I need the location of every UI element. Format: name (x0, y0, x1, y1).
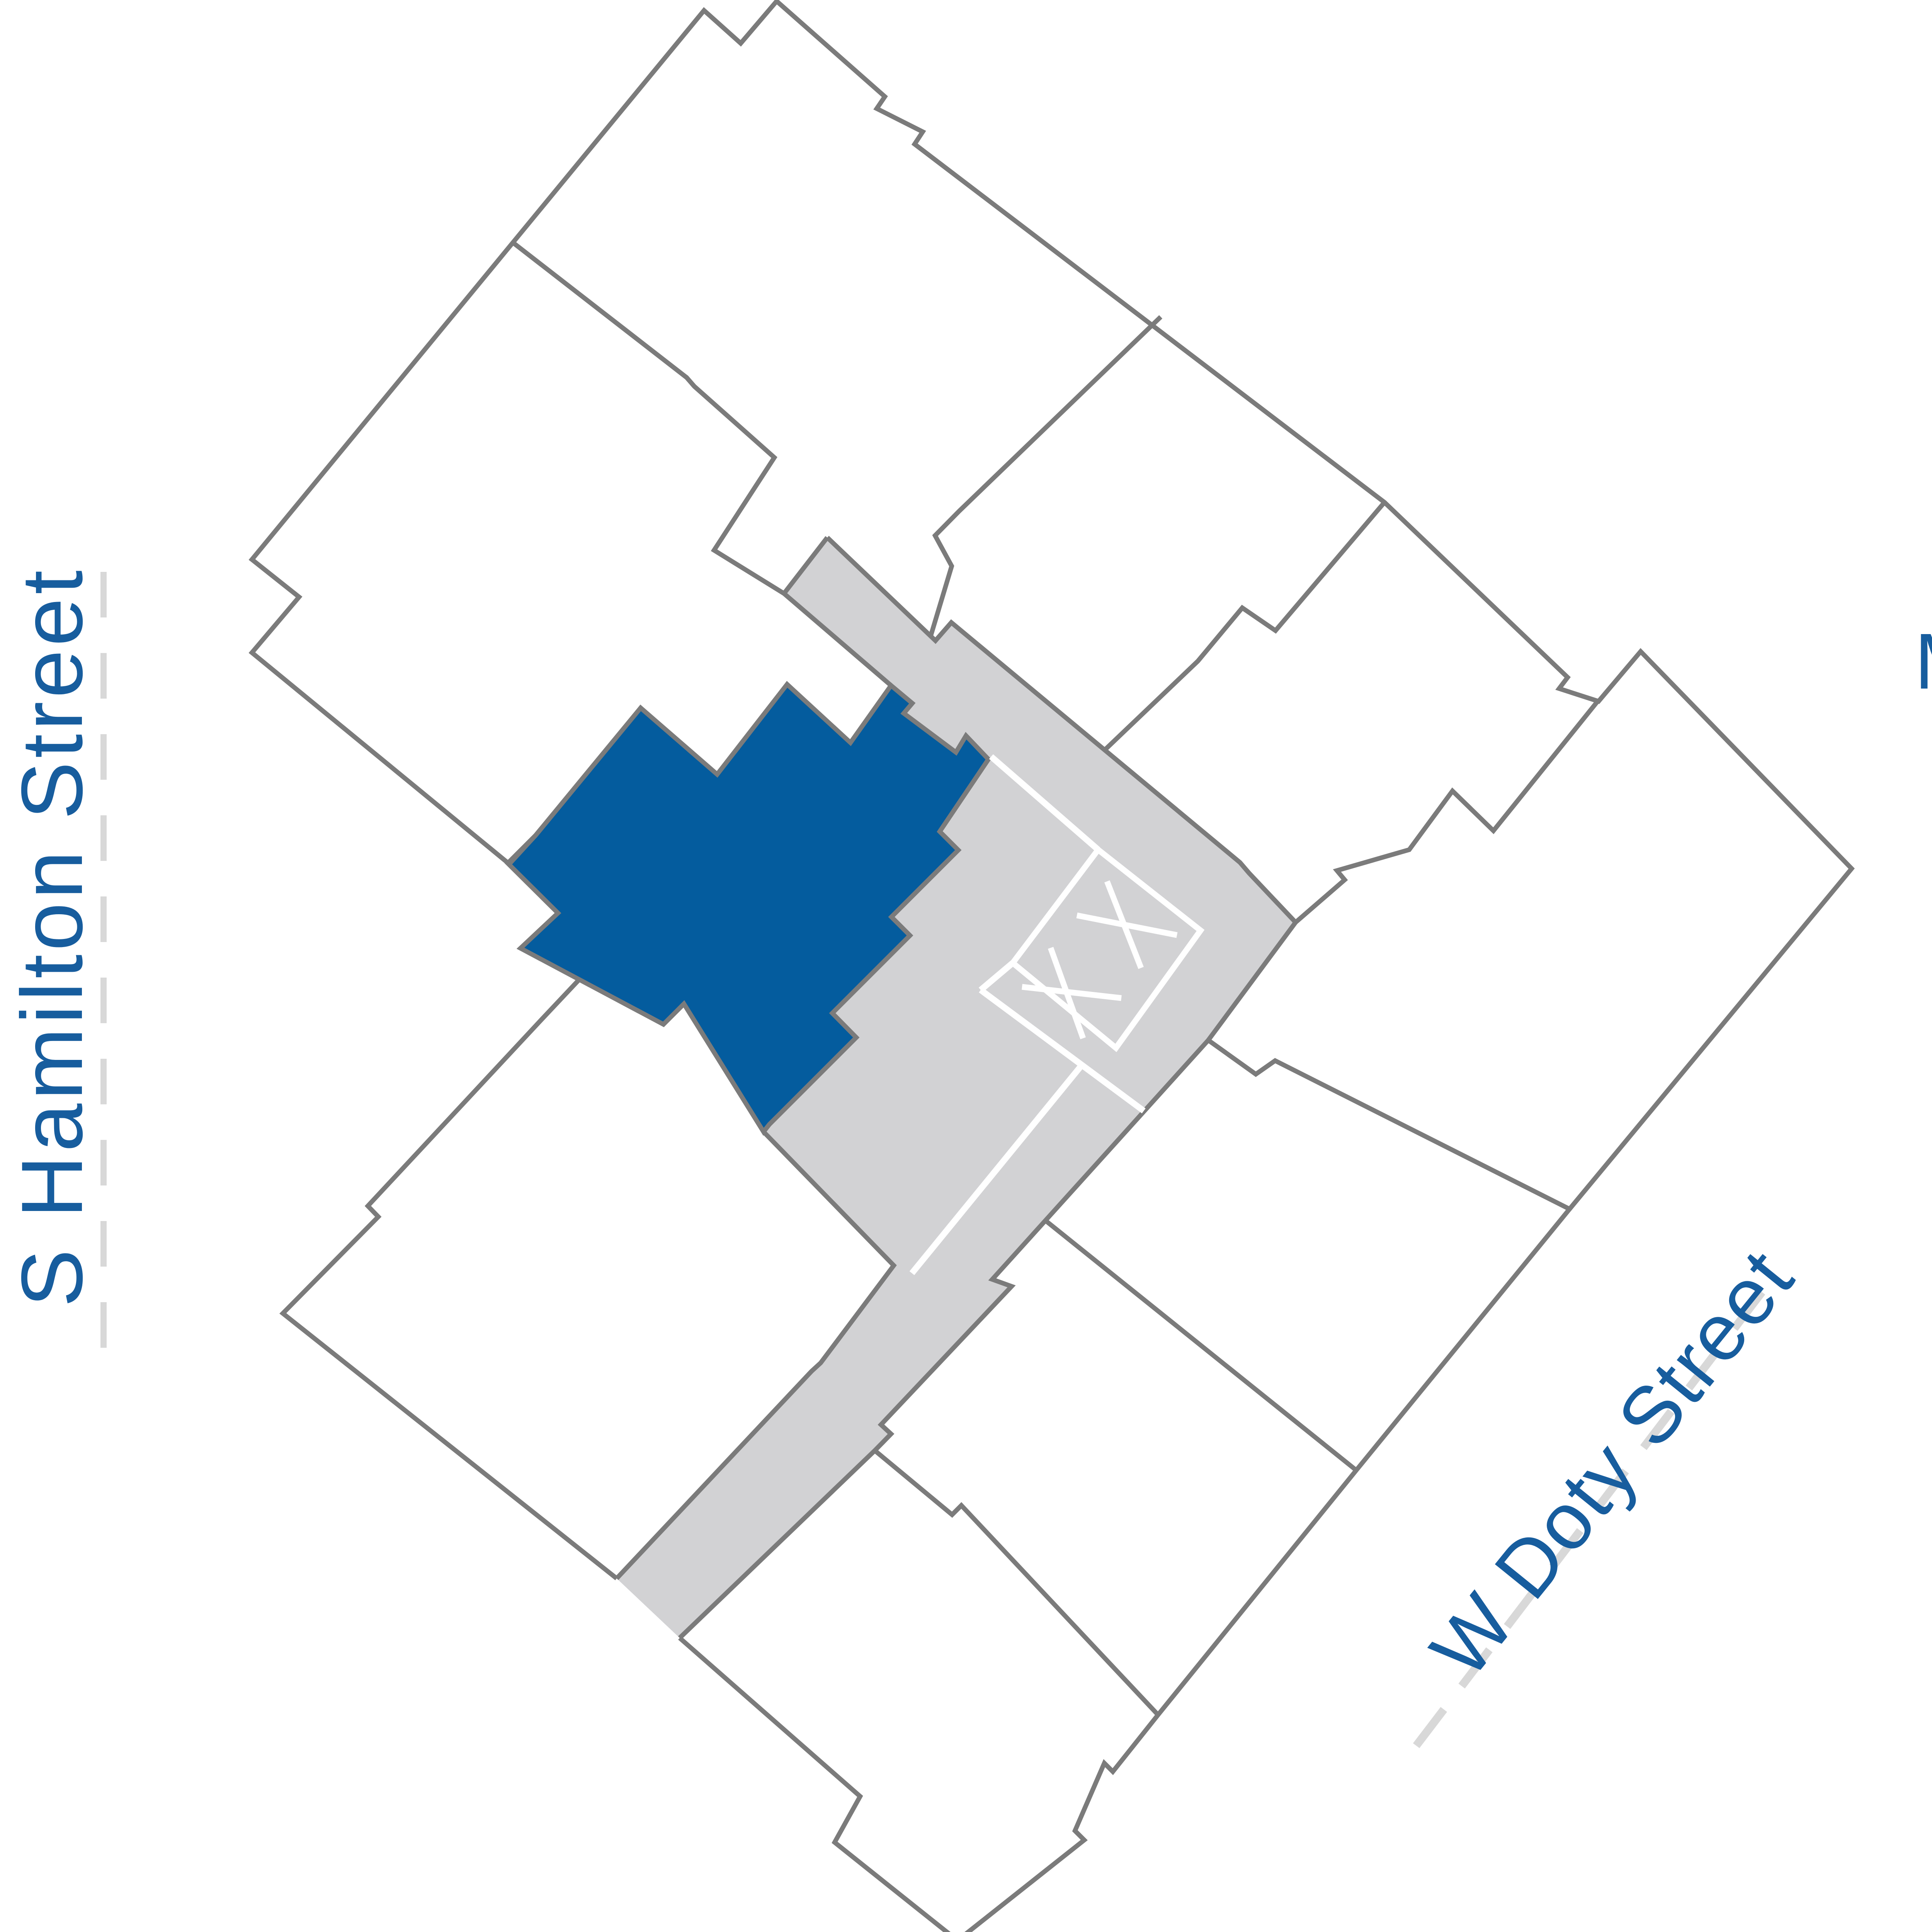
svg-text:Monona: Monona (1915, 617, 1932, 706)
svg-text:S Hamilton Street: S Hamilton Street (3, 567, 100, 1307)
